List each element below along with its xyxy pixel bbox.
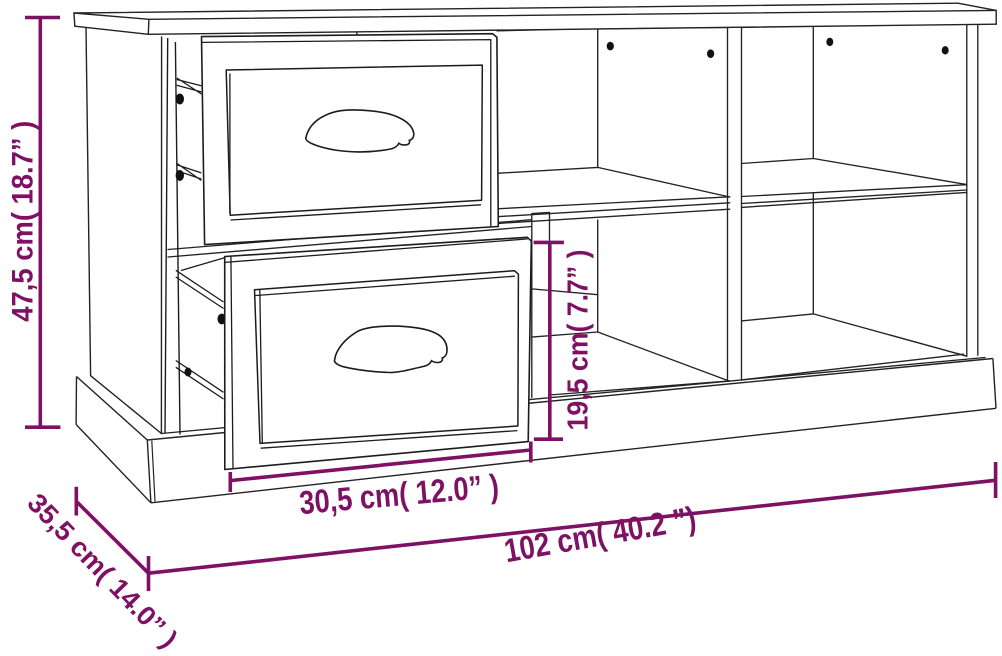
svg-text:47,5 cm( 18.7” ): 47,5 cm( 18.7” ) (6, 121, 39, 322)
svg-text:19,5 cm( 7.7” ): 19,5 cm( 7.7” ) (563, 250, 595, 431)
